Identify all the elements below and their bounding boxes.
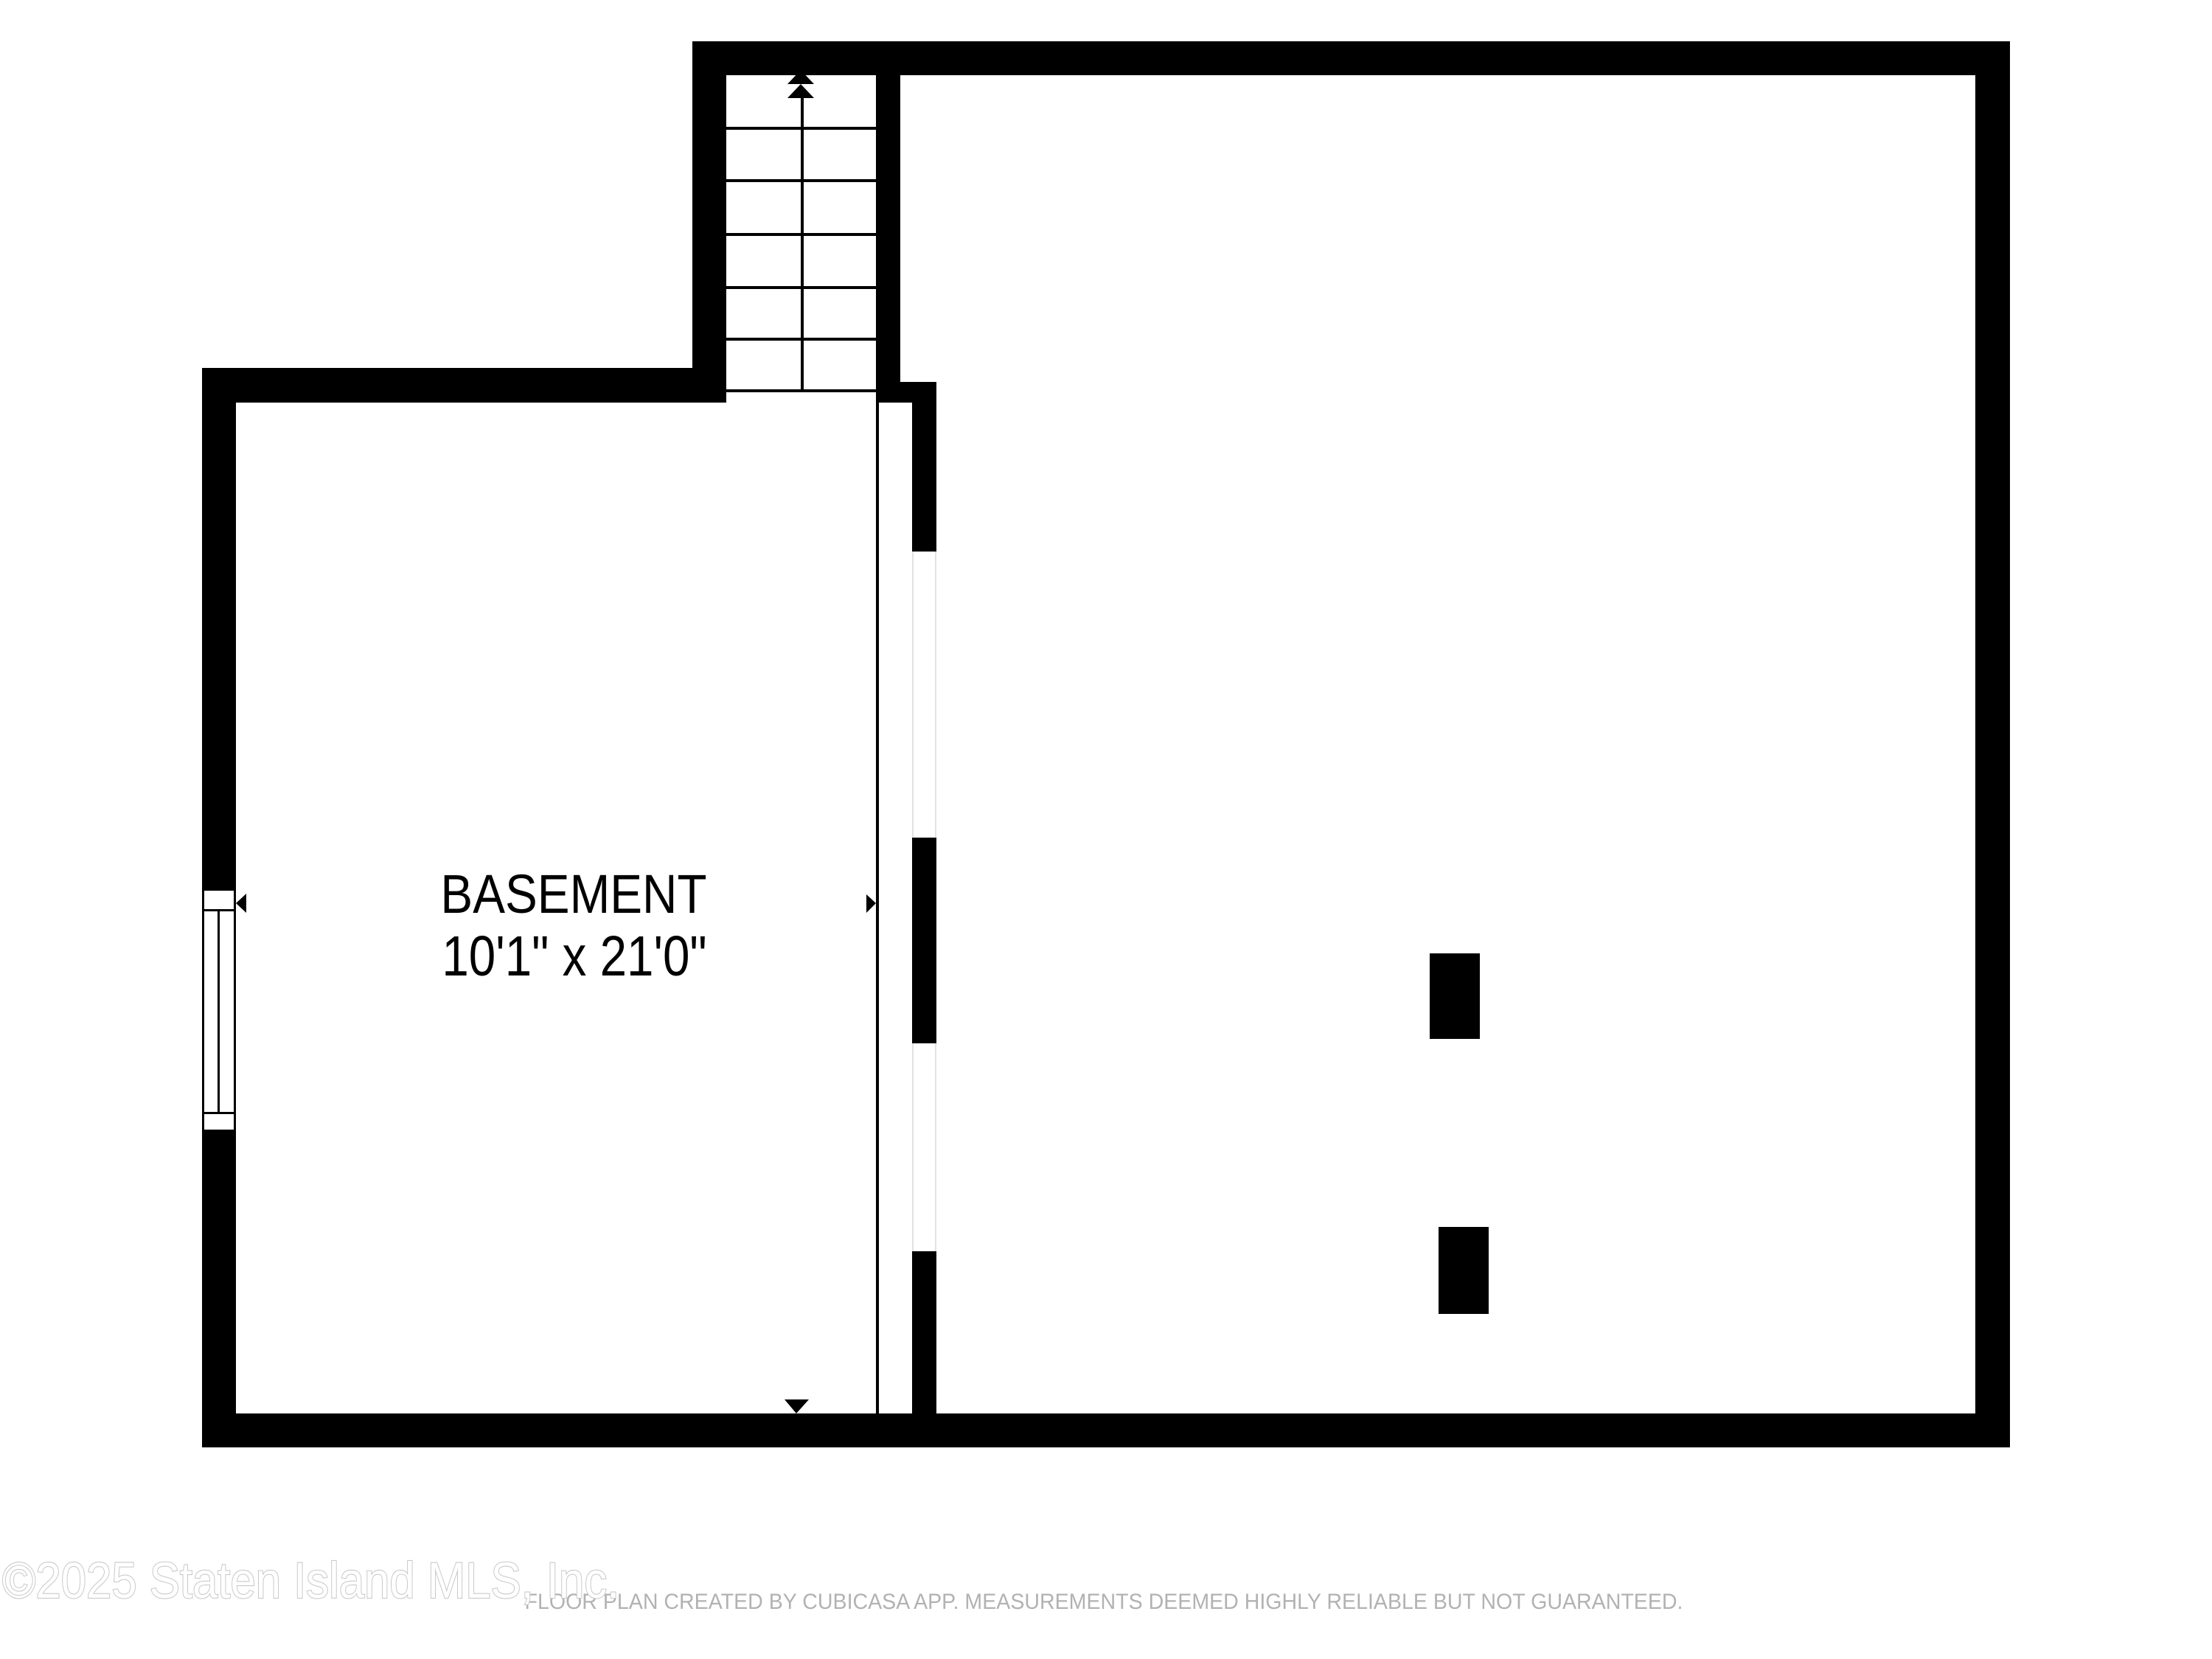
svg-text:FLOOR PLAN CREATED BY CUBICASA: FLOOR PLAN CREATED BY CUBICASA APP. MEAS… [525, 1590, 1683, 1615]
svg-text:10'1" x 21'0": 10'1" x 21'0" [442, 925, 706, 988]
svg-text:©2025 Staten Island MLS, Inc.: ©2025 Staten Island MLS, Inc. [2, 1552, 619, 1609]
svg-text:BASEMENT: BASEMENT [440, 863, 706, 925]
